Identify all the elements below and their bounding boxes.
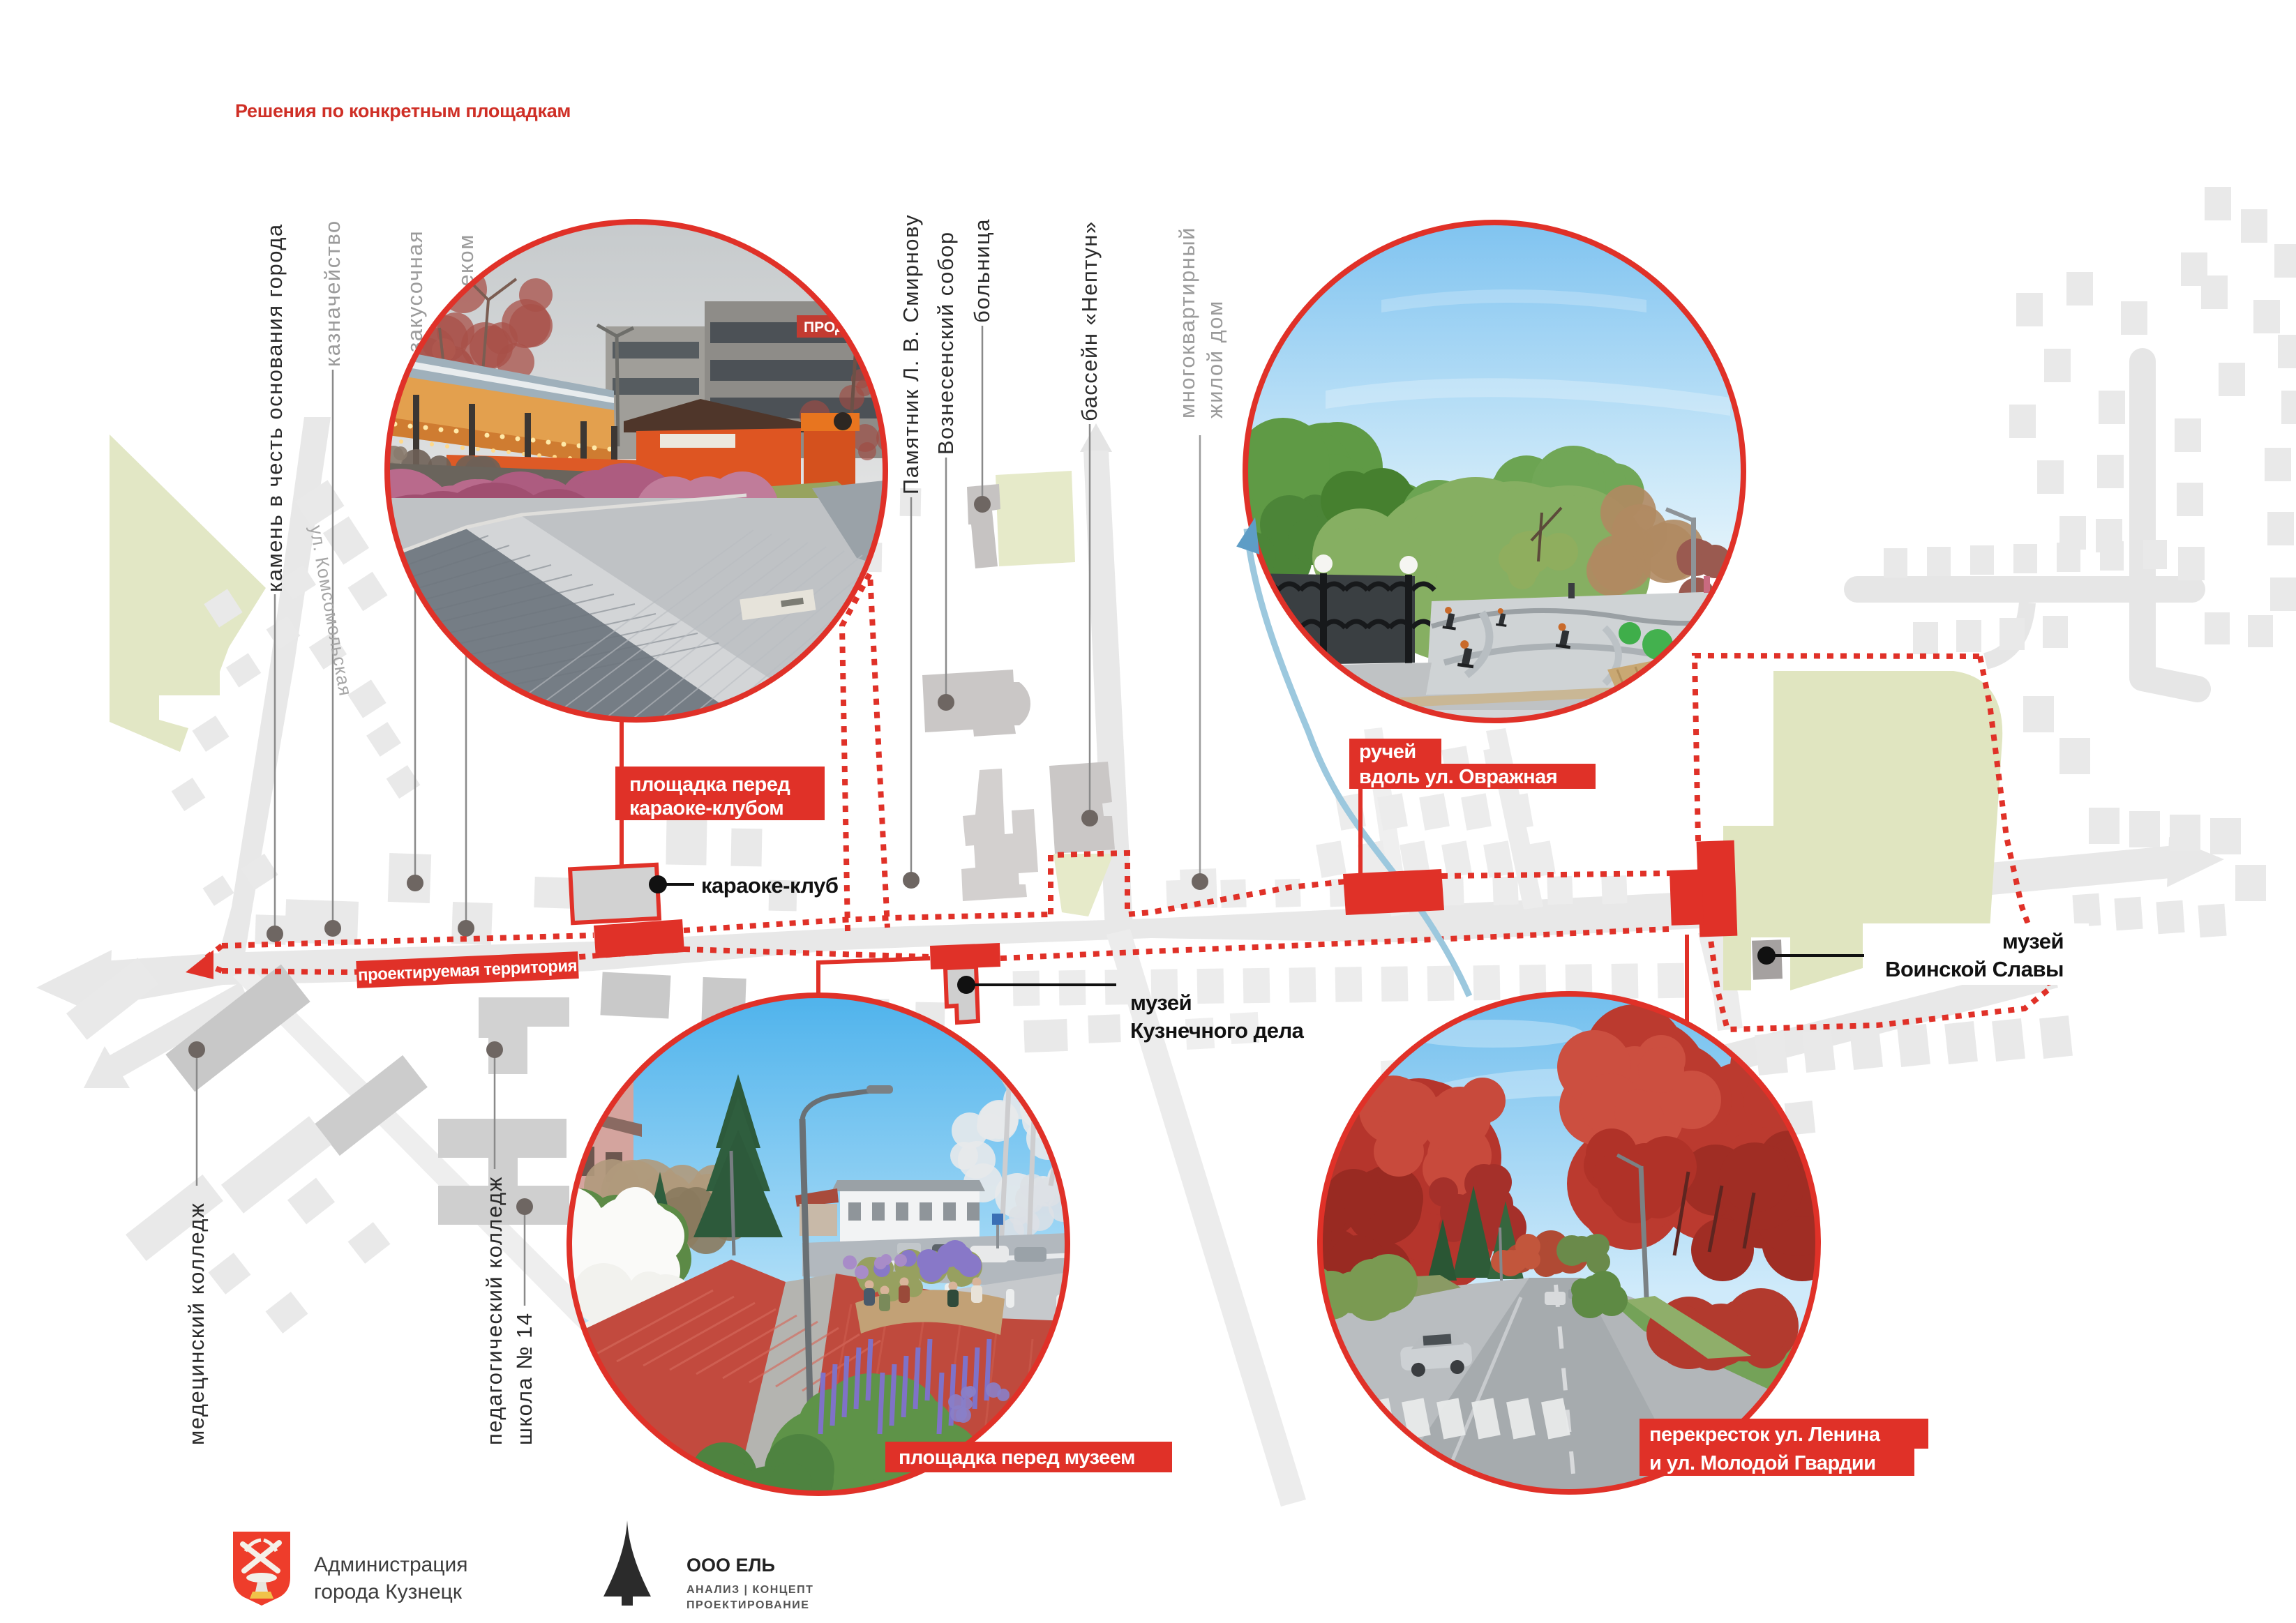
svg-text:больница: больница [970,218,994,323]
svg-text:Воинской Славы: Воинской Славы [1885,957,2064,981]
svg-text:Памятник Л. В. Смирнову: Памятник Л. В. Смирнову [899,214,923,495]
svg-text:педагогический колледж: педагогический колледж [482,1176,507,1445]
svg-text:бассейн «Нептун»: бассейн «Нептун» [1077,220,1102,421]
svg-text:медецинский колледж: медецинский колледж [184,1202,209,1445]
svg-text:караоке-клубом: караоке-клубом [629,797,783,820]
svg-text:музей: музей [1130,990,1192,1015]
svg-text:и ул. Молодой Гвардии: и ул. Молодой Гвардии [1649,1452,1876,1474]
svg-text:Вознесенский собор: Вознесенский собор [933,231,958,455]
svg-text:ПРОЕКТИРОВАНИЕ: ПРОЕКТИРОВАНИЕ [686,1599,809,1611]
svg-text:закусочная: закусочная [403,230,427,352]
svg-text:вдоль ул. Овражная: вдоль ул. Овражная [1359,766,1557,788]
svg-text:Кузнечного дела: Кузнечного дела [1130,1018,1305,1043]
svg-text:Решения по конкретным площадка: Решения по конкретным площадкам [235,100,571,121]
svg-text:АНАЛИЗ | КОНЦЕПТ: АНАЛИЗ | КОНЦЕПТ [686,1584,813,1596]
svg-text:караоке-клуб: караоке-клуб [701,873,839,898]
svg-text:перекресток ул. Ленина: перекресток ул. Ленина [1649,1424,1881,1446]
svg-text:Администрация: Администрация [314,1553,468,1576]
svg-text:музей: музей [2002,929,2064,953]
svg-text:города Кузнецк: города Кузнецк [314,1580,463,1603]
svg-text:ООО ЕЛЬ: ООО ЕЛЬ [686,1555,775,1576]
svg-text:жилой дом: жилой дом [1203,300,1227,418]
svg-text:камень в честь основания город: камень в честь основания города [262,223,287,592]
svg-text:школа № 14: школа № 14 [512,1312,537,1445]
svg-text:ручей: ручей [1359,741,1416,763]
svg-text:казначейство: казначейство [320,220,345,367]
svg-text:площадка перед музеем: площадка перед музеем [899,1447,1135,1469]
svg-text:многоквартирный: многоквартирный [1175,227,1199,418]
svg-text:площадка перед: площадка перед [629,773,790,796]
